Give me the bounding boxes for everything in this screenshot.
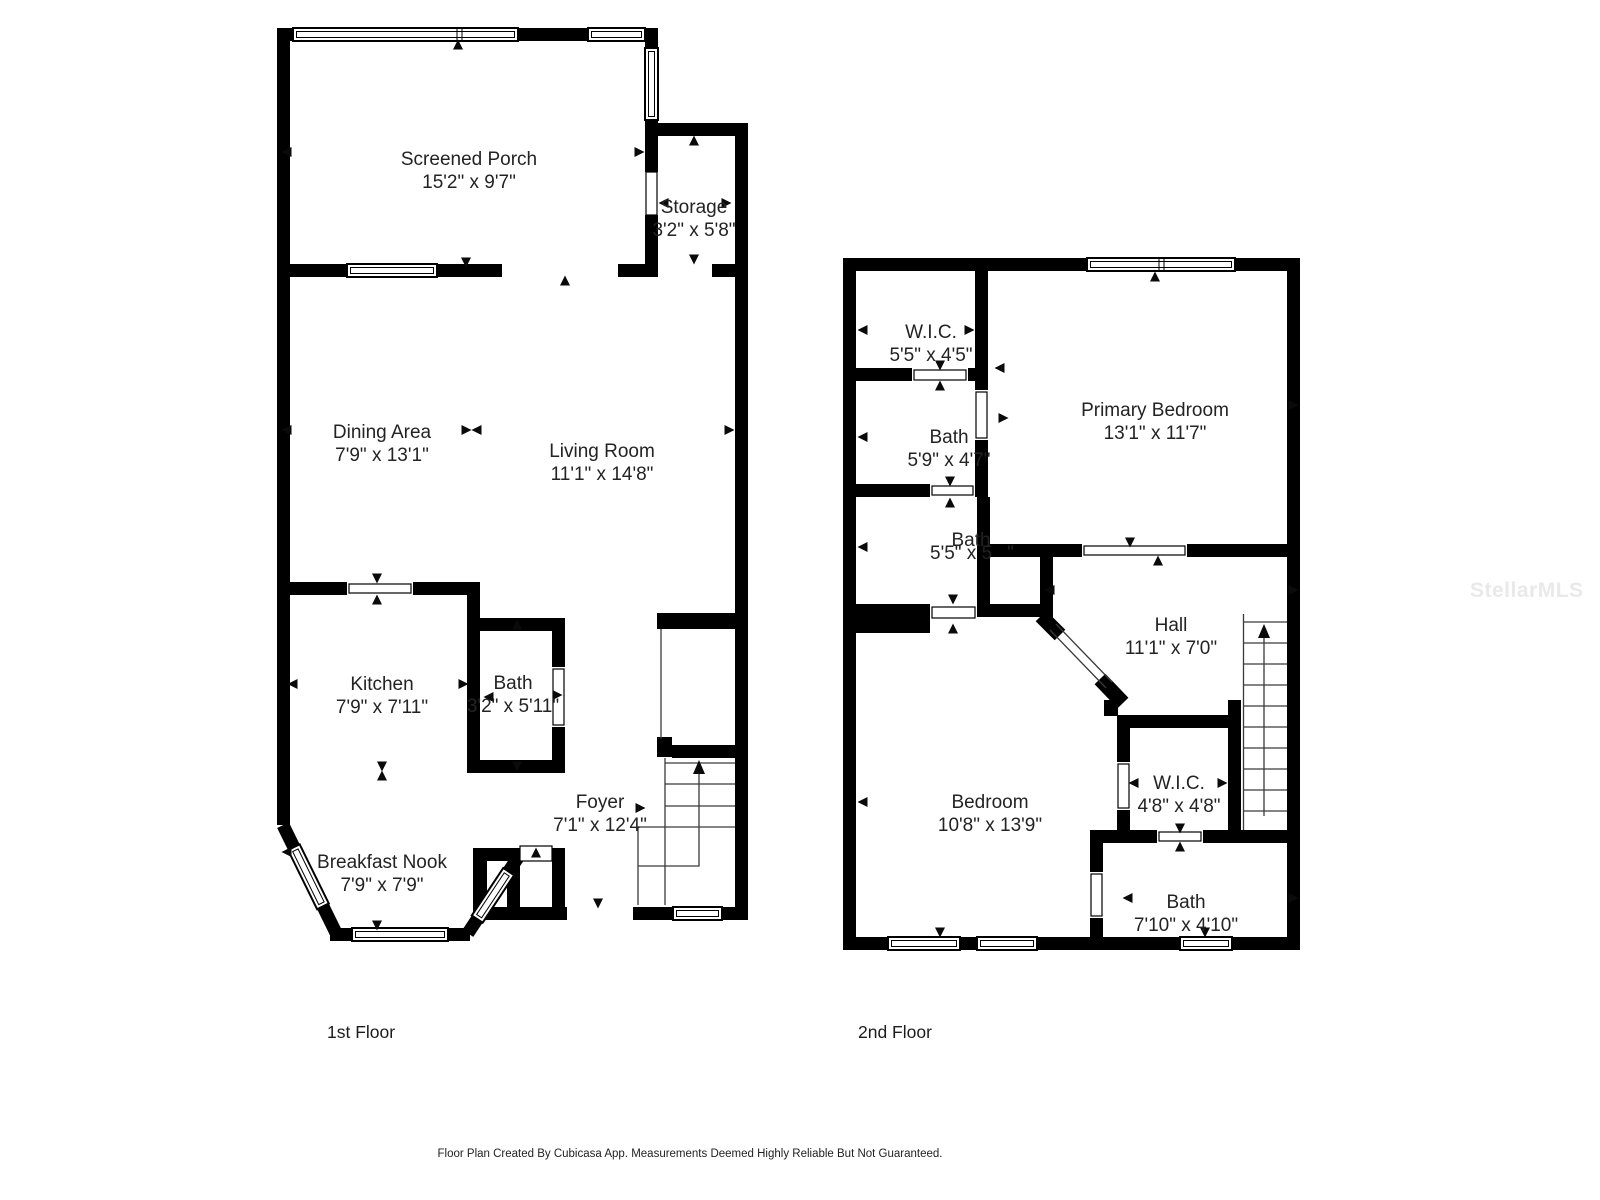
room-label-hall: Hall 11'1" x 7'0" [1091, 614, 1251, 660]
room-dims: 4'8" x 4'8" [1109, 795, 1249, 818]
room-name: Bath [1106, 891, 1266, 914]
room-label-bath-2f: Bath 7'10" x 4'10" [1106, 891, 1266, 937]
first-floor-label: 1st Floor [327, 1022, 395, 1043]
room-name: W.I.C. [1109, 772, 1249, 795]
room-name: Dining Area [282, 421, 482, 444]
room-label-wic-primary: W.I.C. 5'5" x 4'5" [861, 321, 1001, 367]
room-dims: 13'1" x 11'7" [1035, 422, 1275, 445]
room-label-dining-area: Dining Area 7'9" x 13'1" [282, 421, 482, 467]
room-label-wic-bedroom: W.I.C. 4'8" x 4'8" [1109, 772, 1249, 818]
room-label-living-room: Living Room 11'1" x 14'8" [502, 440, 702, 486]
room-dims: 15'2" x 9'7" [369, 171, 569, 194]
room-name: Primary Bedroom [1035, 399, 1275, 422]
room-name: Foyer [520, 791, 680, 814]
room-name: Screened Porch [369, 148, 569, 171]
room-dims: 7'1" x 12'4" [520, 814, 680, 837]
floor-plan-page: Screened Porch 15'2" x 9'7" Storage 3'2"… [0, 0, 1600, 1200]
room-dims-bath-hall: 5'5" x 5 " [930, 542, 1014, 565]
room-name: Bedroom [890, 791, 1090, 814]
room-label-breakfast-nook: Breakfast Nook 7'9" x 7'9" [282, 851, 482, 897]
first-floor-stairs [638, 629, 735, 905]
room-dims: 3'2" x 5'11" [443, 695, 583, 718]
stellar-mls-watermark: StellarMLS [1470, 579, 1584, 603]
disclaimer-caption: Floor Plan Created By Cubicasa App. Meas… [438, 1148, 943, 1160]
room-dims-part: " [1007, 542, 1014, 565]
room-dims: 7'10" x 4'10" [1106, 914, 1266, 937]
second-floor-label: 2nd Floor [858, 1022, 932, 1043]
room-dims: 7'9" x 13'1" [282, 444, 482, 467]
room-label-bath-1f: Bath 3'2" x 5'11" [443, 672, 583, 718]
room-name: Breakfast Nook [282, 851, 482, 874]
room-dims: 5'5" x 4'5" [861, 344, 1001, 367]
room-name: W.I.C. [861, 321, 1001, 344]
room-name: Living Room [502, 440, 702, 463]
room-label-foyer: Foyer 7'1" x 12'4" [520, 791, 680, 837]
room-label-storage: Storage 3'2" x 5'8" [634, 196, 754, 242]
room-label-screened-porch: Screened Porch 15'2" x 9'7" [369, 148, 569, 194]
room-dims: 3'2" x 5'8" [634, 219, 754, 242]
room-name: Hall [1091, 614, 1251, 637]
room-dims: 11'1" x 14'8" [502, 463, 702, 486]
room-dims: 10'8" x 13'9" [890, 814, 1090, 837]
floor-plan-graphic [0, 0, 1600, 1200]
room-name: Storage [634, 196, 754, 219]
room-label-primary-bedroom: Primary Bedroom 13'1" x 11'7" [1035, 399, 1275, 445]
room-dims-part: 5'5" x 5 [930, 542, 992, 565]
room-dims: 7'9" x 7'9" [282, 874, 482, 897]
room-dims: 11'1" x 7'0" [1091, 637, 1251, 660]
room-label-bedroom: Bedroom 10'8" x 13'9" [890, 791, 1090, 837]
room-dims: 5'9" x 4'7" [879, 449, 1019, 472]
room-name: Bath [443, 672, 583, 695]
room-label-bath-primary: Bath 5'9" x 4'7" [879, 426, 1019, 472]
room-name: Bath [879, 426, 1019, 449]
